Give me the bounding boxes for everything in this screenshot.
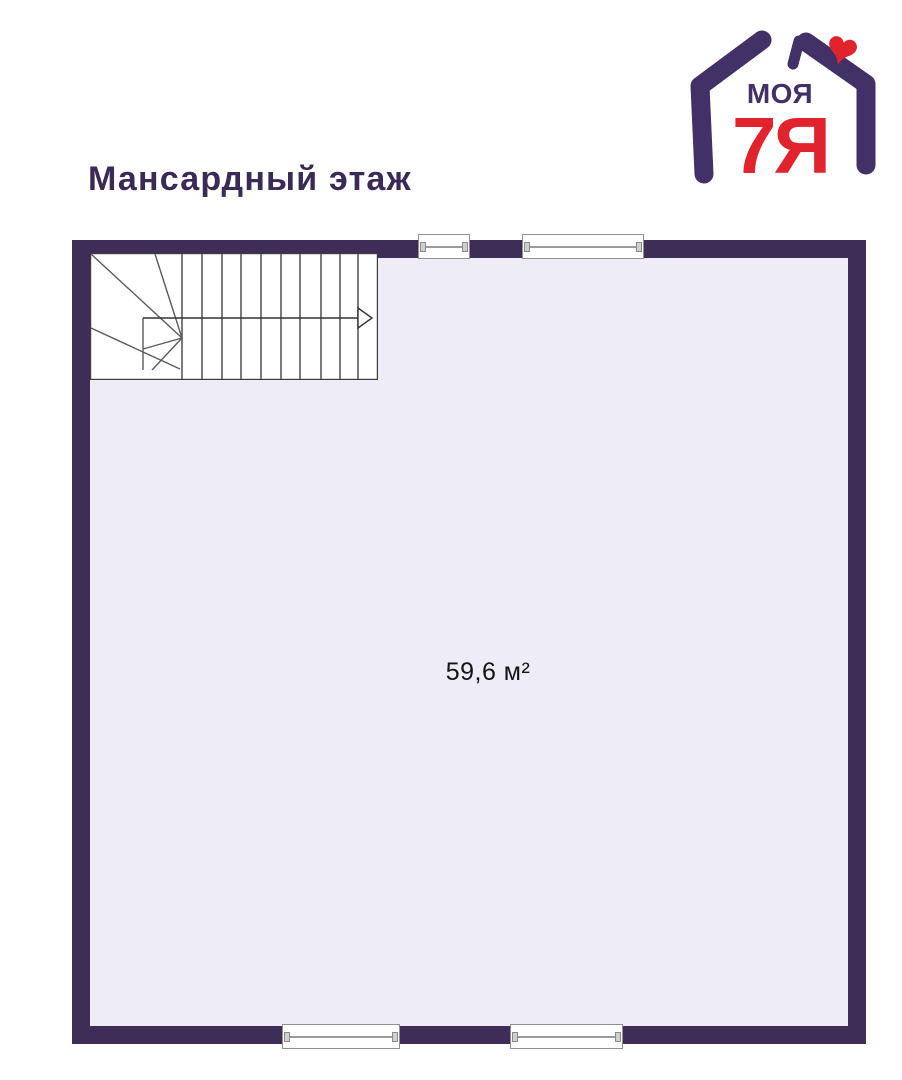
stair-outline [91, 254, 378, 380]
window-jamb-left [512, 1032, 518, 1042]
window-glass-line [525, 246, 641, 248]
window-glass-line [285, 1036, 397, 1038]
brand-logo: МОЯ 7Я [678, 22, 890, 184]
window-jamb-right [462, 242, 468, 252]
window-jamb-right [392, 1032, 398, 1042]
room-area-label: 59,6 м² [398, 658, 578, 687]
window-jamb-left [284, 1032, 290, 1042]
window-bottom-right [510, 1024, 623, 1049]
window-top-left [418, 234, 470, 259]
window-jamb-right [636, 242, 642, 252]
floor-title: Мансардный этаж [88, 160, 412, 199]
brand-text-main: 7Я [732, 101, 828, 184]
window-top-right [522, 234, 644, 259]
window-jamb-left [524, 242, 530, 252]
window-glass-line [513, 1036, 620, 1038]
window-jamb-right [615, 1032, 621, 1042]
page: МОЯ 7Я Мансардный этаж [0, 0, 902, 1080]
window-bottom-left [282, 1024, 400, 1049]
window-glass-line [421, 246, 467, 248]
window-jamb-left [420, 242, 426, 252]
staircase [90, 253, 378, 380]
